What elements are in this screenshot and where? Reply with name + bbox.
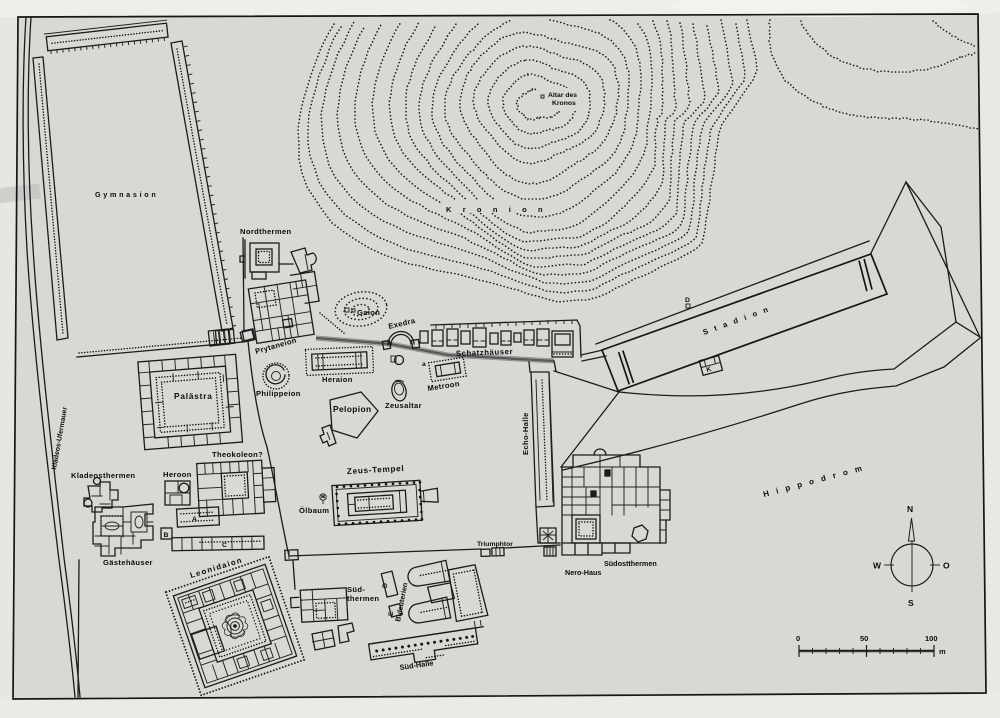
svg-text:a: a: [422, 361, 426, 368]
svg-text:50: 50: [860, 634, 868, 643]
svg-text:Nero-Haus: Nero-Haus: [565, 568, 601, 577]
svg-text:Kronion: Kronion: [446, 205, 554, 214]
svg-text:D: D: [382, 583, 389, 588]
svg-text:m: m: [939, 647, 946, 656]
svg-text:100: 100: [925, 634, 938, 643]
svg-text:A: A: [192, 516, 197, 523]
svg-text:D: D: [685, 297, 690, 304]
svg-text:S: S: [908, 598, 914, 608]
svg-text:W: W: [873, 561, 882, 571]
svg-text:Zeusaltar: Zeusaltar: [385, 401, 422, 410]
svg-text:Nordthermen: Nordthermen: [240, 227, 292, 236]
svg-text:Gymnasion: Gymnasion: [95, 190, 158, 199]
svg-text:Südostthermen: Südostthermen: [604, 559, 657, 568]
svg-text:Kladeosthermen: Kladeosthermen: [71, 471, 135, 480]
svg-text:Süd-: Süd-: [347, 585, 365, 594]
svg-text:Palästra: Palästra: [174, 391, 213, 401]
svg-text:Pelopion: Pelopion: [333, 404, 372, 414]
svg-text:Theokoleon?: Theokoleon?: [212, 450, 263, 459]
svg-text:0: 0: [796, 634, 800, 643]
svg-text:Gästehäuser: Gästehäuser: [103, 558, 153, 567]
svg-text:Philippeion: Philippeion: [256, 389, 301, 398]
svg-text:Echo-Halle: Echo-Halle: [521, 412, 530, 455]
svg-text:Kronos: Kronos: [552, 100, 576, 107]
svg-text:Gaion: Gaion: [357, 308, 380, 317]
svg-text:O: O: [943, 561, 950, 571]
svg-text:Altar des: Altar des: [548, 92, 577, 99]
svg-text:thermen: thermen: [347, 594, 379, 603]
svg-text:C: C: [222, 542, 227, 549]
svg-text:Triumphtor: Triumphtor: [477, 541, 513, 548]
svg-text:Heroon: Heroon: [163, 470, 192, 479]
svg-text:B: B: [164, 532, 169, 539]
svg-text:Ölbaum: Ölbaum: [299, 506, 329, 515]
svg-text:Heraion: Heraion: [322, 375, 353, 384]
svg-text:N: N: [907, 504, 913, 514]
